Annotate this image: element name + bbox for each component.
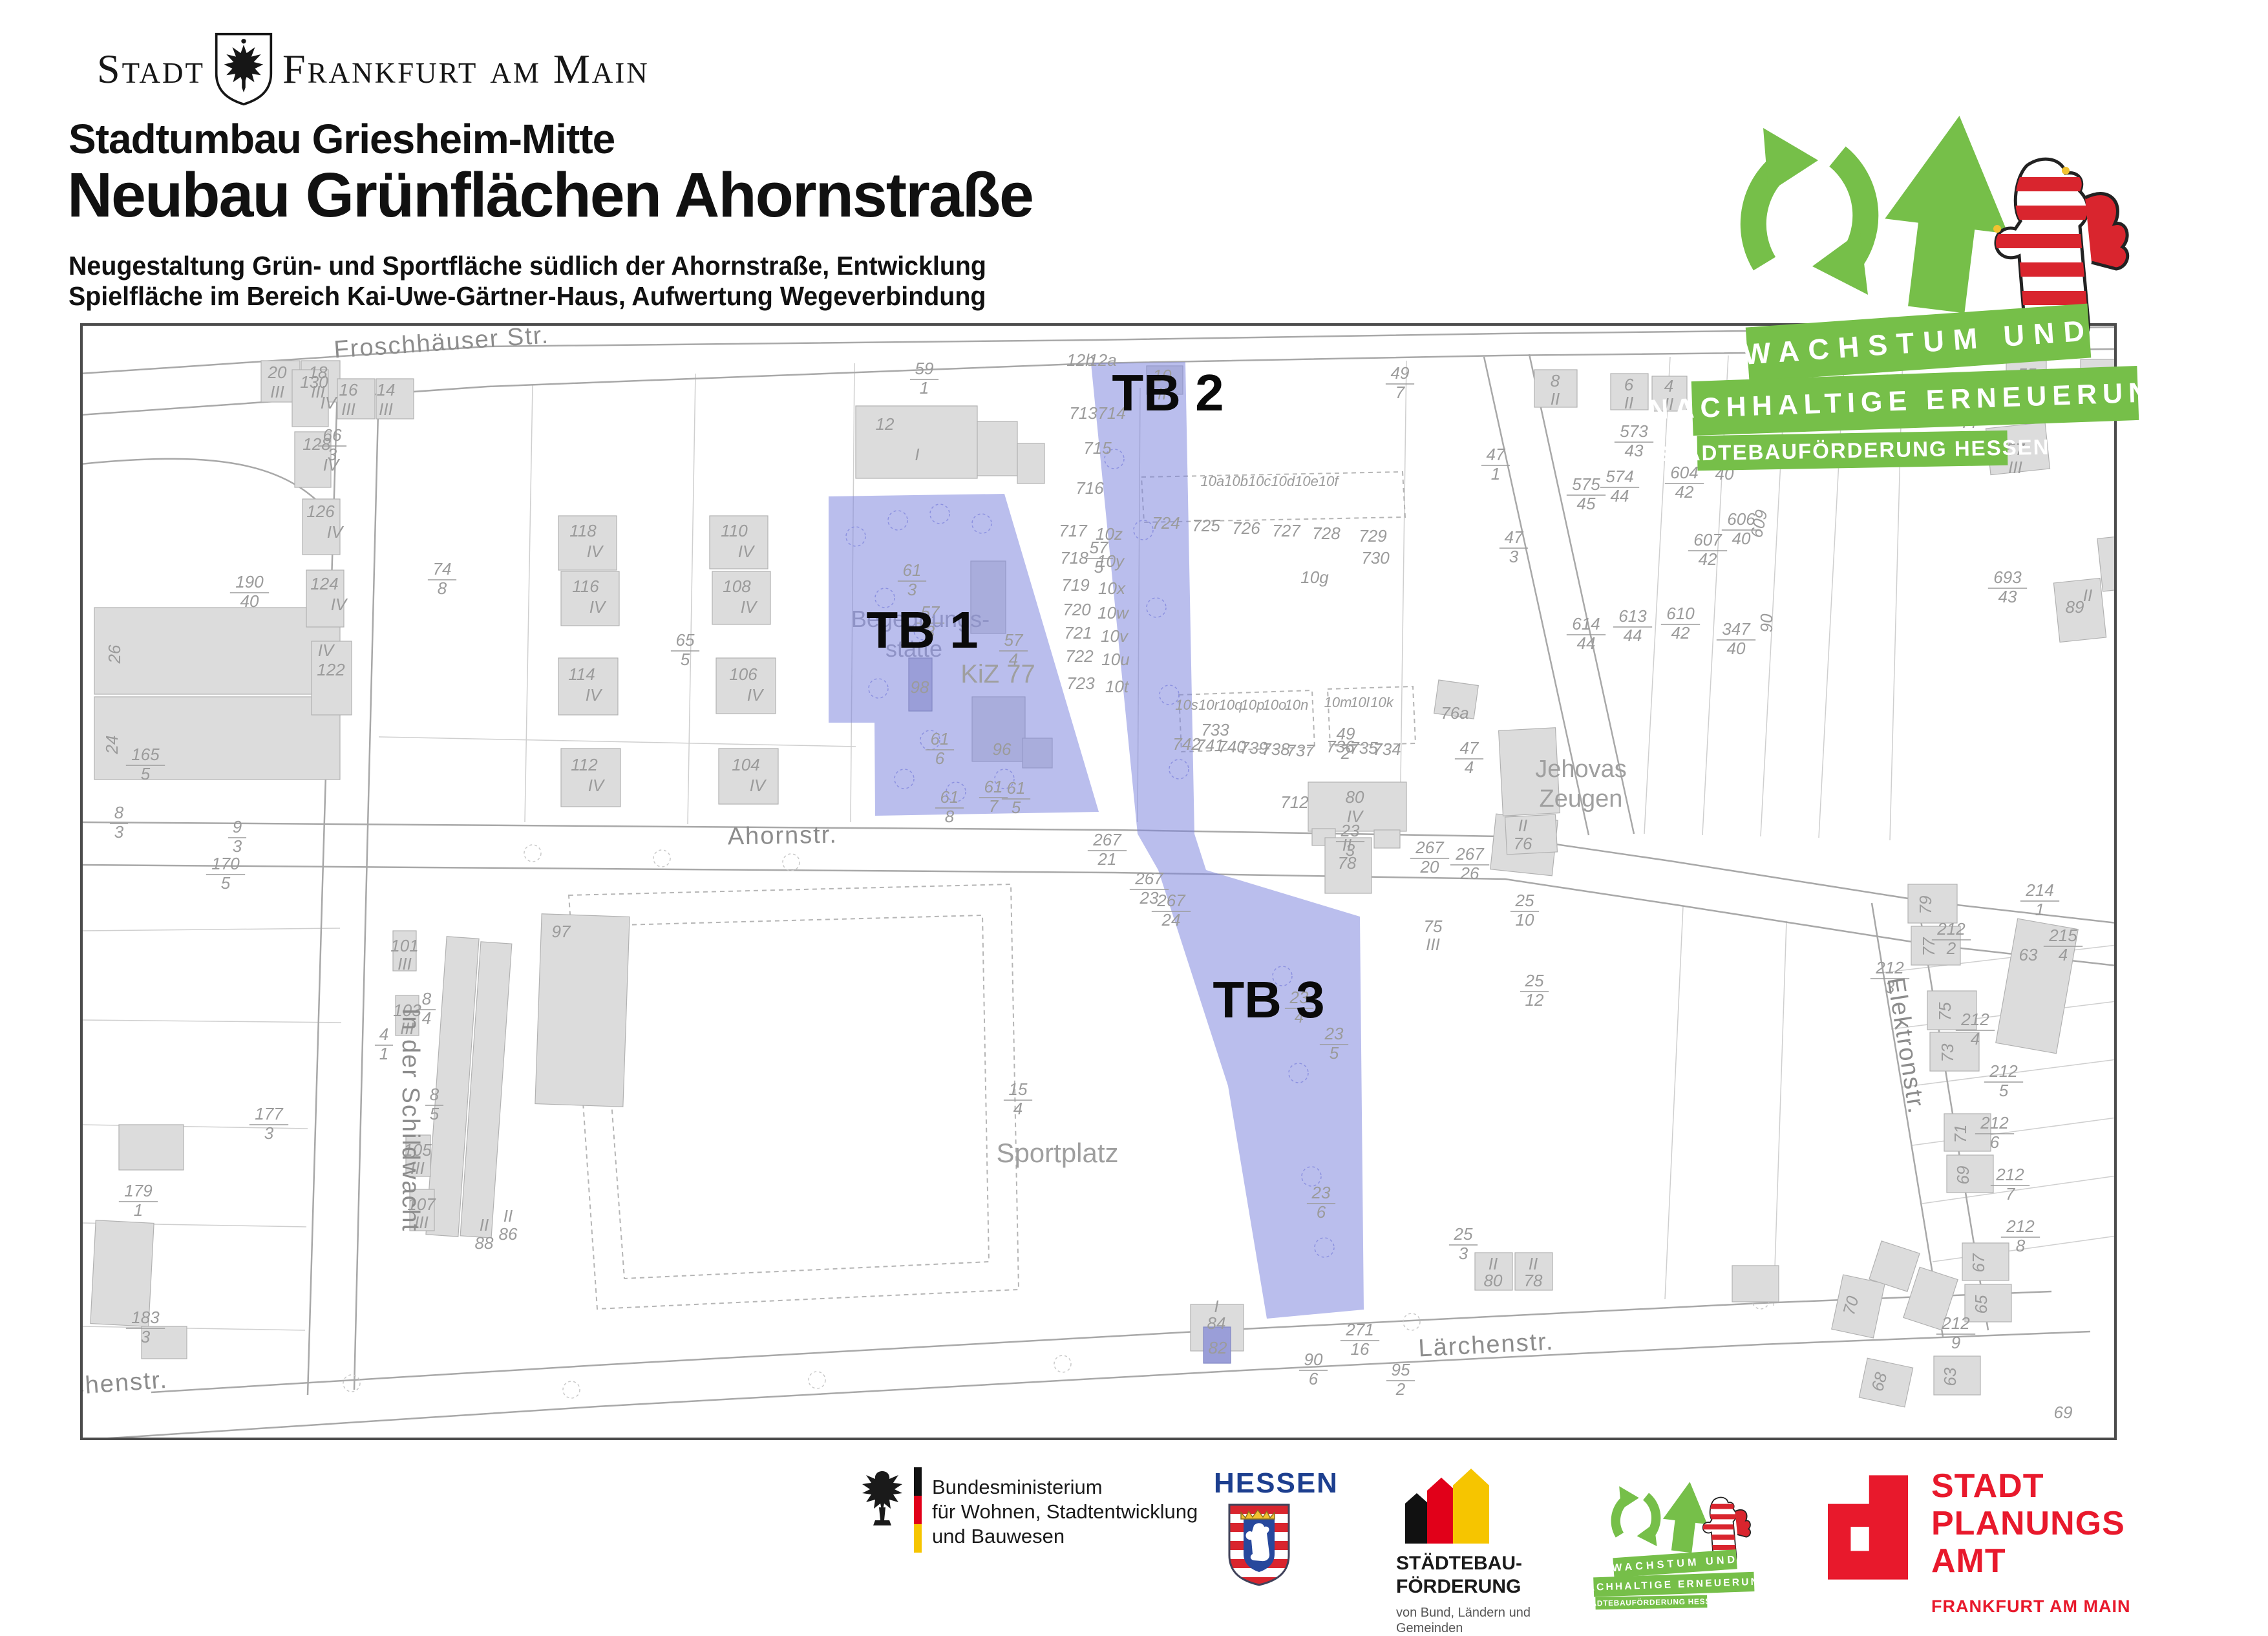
parcel-number: 6	[935, 749, 945, 768]
parcel-number: 42	[1699, 549, 1717, 569]
parcel-number: 721	[1064, 623, 1092, 643]
parcel-number: IV	[588, 776, 606, 795]
parcel-number: 10t	[1105, 677, 1130, 696]
frankfurt-eagle-crest-icon	[214, 31, 273, 107]
parcel-number: 9	[1951, 1333, 1960, 1352]
parcel-number: 4	[1013, 1099, 1023, 1118]
city-logo-word-frankfurt: Frankfurt am Main	[282, 45, 650, 93]
tree-icon	[809, 1372, 825, 1388]
parcel-number: 10m	[1324, 694, 1352, 710]
tree-icon	[524, 845, 541, 862]
building	[1374, 830, 1400, 848]
parcel-number: 610	[1666, 604, 1695, 623]
city-logo: Stadt Frankfurt am Main	[97, 31, 650, 107]
staedtebau-sub-1: von Bund, Ländern und	[1396, 1605, 1590, 1620]
parcel-number: 116	[572, 577, 599, 596]
parcel-number: 130	[300, 372, 328, 392]
parcel-number: 43	[1625, 441, 1644, 460]
page-subtitle: Neugestaltung Grün- und Sportfläche südl…	[69, 251, 986, 312]
building	[94, 608, 340, 694]
street-label: In der Schildwacht	[397, 1008, 424, 1233]
parcel-number: 10z	[1096, 524, 1123, 544]
staedtebau-line-1: STÄDTEBAU-	[1396, 1552, 1590, 1575]
parcel-number: 733	[1201, 720, 1229, 739]
parcel-number: 719	[1061, 575, 1089, 595]
parcel-number: 3	[1346, 840, 1355, 860]
parcel-number: 4	[379, 1025, 388, 1044]
parcel-number: 10w	[1097, 603, 1130, 622]
parcel-number: 49	[1391, 363, 1410, 383]
spa-line-3: AMT	[1931, 1542, 2130, 1580]
parcel-number: 5	[430, 1104, 440, 1123]
parcel-number: 4	[2059, 945, 2068, 964]
parcel-number: 575	[1572, 474, 1600, 494]
parcel-number: 267	[1415, 838, 1445, 857]
parcel-number: 5	[1999, 1081, 2009, 1100]
page-title-program: Stadtumbau Griesheim-Mitte	[69, 115, 615, 163]
parcel-number: 7	[1395, 383, 1406, 402]
parcel-number: 179	[124, 1181, 152, 1200]
parcel-number: 12	[876, 414, 895, 434]
spa-line-2: PLANUNGS	[1931, 1505, 2130, 1542]
growth-renewal-badge: WACHSTUM UND NACHHALTIGE ERNEUERUNG STÄD…	[1686, 97, 2138, 485]
parcel-number: 23	[1139, 888, 1159, 908]
parcel-number: 75	[1935, 1002, 1955, 1021]
parcel-number: 267	[1134, 869, 1164, 888]
parcel-number: 10v	[1101, 626, 1129, 646]
project-area-highlight	[1158, 870, 1364, 1319]
parcel-number: 59	[915, 359, 934, 378]
parcel-number: 101	[390, 936, 418, 955]
parcel-number: 126	[306, 502, 335, 521]
parcel-number: 215	[2048, 926, 2077, 945]
parcel-number: 114	[568, 664, 595, 684]
parcel-number: 734	[1373, 739, 1401, 759]
building	[977, 421, 1017, 476]
building	[856, 406, 977, 478]
tree-icon	[1054, 1355, 1071, 1372]
parcel-number: III	[341, 399, 355, 419]
parcel-number: 4	[1971, 1029, 1980, 1048]
parcel-number: IV	[331, 595, 348, 614]
parcel-number: 69	[2054, 1403, 2073, 1422]
parcel-number: 80	[1346, 787, 1364, 807]
project-area-highlight	[1138, 834, 1206, 870]
parcel-number: 607	[1693, 530, 1722, 549]
parcel-number: 718	[1060, 548, 1088, 568]
parcel-number: II	[2083, 586, 2092, 605]
dashed-boundary	[599, 915, 989, 1279]
recycle-arrowheads	[1763, 109, 2022, 317]
street-label: Elektronstr.	[1881, 975, 1930, 1116]
parcel-number: 717	[1059, 521, 1088, 540]
german-flag-bar-icon	[914, 1467, 922, 1553]
logo-staedtebaufoerderung: STÄDTEBAU- FÖRDERUNG von Bund, Ländern u…	[1396, 1467, 1590, 1636]
subtitle-line-2: Spielfläche im Bereich Kai-Uwe-Gärtner-H…	[69, 281, 986, 312]
parcel-number: 42	[1671, 623, 1690, 643]
parcel-number: 23	[1341, 821, 1360, 840]
parcel-number: 1	[379, 1044, 388, 1063]
staedtebau-line-2: FÖRDERUNG	[1396, 1575, 1590, 1599]
parcel-number: IV	[747, 685, 765, 705]
parcel-number: 722	[1065, 646, 1094, 666]
spa-line-1: STADT	[1931, 1467, 2130, 1505]
parcel-number: 110	[721, 521, 748, 540]
parcel-number: 4	[1465, 758, 1474, 777]
spa-line-4: FRANKFURT AM MAIN	[1931, 1597, 2130, 1617]
parcel-number: 10s	[1175, 697, 1198, 713]
parcel-number: 44	[1577, 633, 1596, 653]
parcel-number: 165	[131, 745, 160, 764]
parcel-number: IV	[321, 393, 338, 412]
parcel-number: 108	[723, 577, 751, 596]
parcel-number: 9	[233, 817, 242, 836]
parcel-number: 3	[264, 1123, 274, 1143]
parcel-number: 71	[1951, 1125, 1970, 1143]
place-label: Zeugen	[1540, 785, 1623, 813]
parcel-number: 23	[1324, 1024, 1344, 1043]
bund-line-1: Bundesministerium	[932, 1475, 1198, 1500]
road-edge	[354, 387, 379, 1390]
tree-icon	[343, 1375, 360, 1392]
parcel-number: 737	[1286, 741, 1315, 760]
federal-eagle-icon	[861, 1467, 904, 1532]
parcel-boundary	[1644, 357, 1670, 834]
parcel-number: 7	[2006, 1184, 2016, 1204]
tree-icon	[653, 850, 670, 867]
parcel-boundary	[379, 737, 856, 747]
parcel-number: 96	[993, 739, 1012, 759]
bund-line-3: und Bauwesen	[932, 1524, 1198, 1549]
parcel-number: 6	[1990, 1132, 2000, 1152]
parcel-number: 729	[1359, 526, 1386, 546]
building	[535, 914, 630, 1107]
parcel-number: 727	[1272, 521, 1301, 540]
parcel-number: 90	[1757, 613, 1776, 632]
parcel-boundary	[80, 928, 340, 931]
parcel-number: 5	[221, 873, 231, 893]
parcel-number: 57	[1004, 630, 1024, 650]
badge-banner-3: STÄDTEBAUFÖRDERUNG HESSEN	[1697, 430, 2008, 471]
parcel-number: 3	[1459, 1244, 1468, 1263]
parcel-number: 84	[1207, 1313, 1226, 1333]
parcel-number: 3	[233, 836, 242, 856]
parcel-number: IV	[327, 522, 344, 542]
parcel-number: 8	[2016, 1236, 2026, 1255]
parcel-number: 267	[1156, 891, 1186, 910]
parcel-number: 728	[1312, 524, 1341, 543]
parcel-number: 267	[1455, 844, 1485, 864]
parcel-number: III	[1426, 935, 1440, 954]
parcel-number: 25	[1525, 971, 1544, 990]
parcel-number: 44	[1611, 486, 1629, 505]
parcel-number: 47	[1505, 527, 1524, 547]
parcel-number: 214	[2025, 880, 2053, 900]
parcel-number: 212	[1989, 1061, 2018, 1081]
parcel-number: 106	[729, 664, 758, 684]
parcel-number: 26	[1460, 864, 1479, 883]
parcel-number: 15	[1009, 1079, 1028, 1099]
parcel-number: II	[1551, 389, 1560, 409]
parcel-number: 8	[438, 579, 447, 598]
street-label: Froschhäuser Str.	[333, 323, 550, 364]
road-edge	[100, 1332, 2090, 1439]
logo-stadtplanungsamt: STADT PLANUNGS AMT FRANKFURT AM MAIN	[1828, 1467, 2130, 1617]
parcel-number: IV	[323, 455, 341, 474]
parcel-number: 573	[1620, 421, 1648, 441]
parcel-number: 79	[1916, 896, 1935, 915]
parcel-number: 4	[1664, 376, 1673, 396]
parcel-boundary	[525, 385, 533, 822]
tree-icon	[563, 1381, 580, 1398]
staedtebau-sub-2: Gemeinden	[1396, 1620, 1590, 1636]
parcel-number: 726	[1232, 518, 1260, 538]
parcel-number: 8	[114, 803, 124, 822]
parcel-number: 69	[1953, 1166, 1973, 1185]
parcel-number: 124	[310, 574, 338, 593]
parcel-number: 3	[141, 1327, 151, 1346]
parcel-number: 5	[141, 764, 151, 783]
parcel-number: 712	[1280, 792, 1309, 812]
parcel-number: II	[480, 1215, 489, 1235]
parcel-number: 10g	[1300, 568, 1329, 587]
parcel-number: 614	[1572, 614, 1600, 633]
place-label: Sportplatz	[996, 1138, 1118, 1168]
parcel-number: 42	[1675, 482, 1694, 502]
parcel-number: 212	[1995, 1165, 2024, 1184]
parcel-number: 67	[1969, 1253, 1988, 1272]
parcel-number: 25	[1454, 1224, 1473, 1244]
parcel-number: 725	[1192, 516, 1220, 535]
parcel-number: 12	[1525, 990, 1544, 1010]
growth-arrow-icon	[1874, 109, 2021, 317]
bund-line-2: für Wohnen, Stadtentwicklung	[932, 1500, 1198, 1524]
parcel-number: 16	[339, 380, 358, 399]
parcel-number: 10l	[1350, 694, 1370, 710]
parcel-number: 25	[1515, 891, 1534, 910]
parcel-number: 10y	[1097, 551, 1125, 571]
city-logo-word-stadt: Stadt	[97, 45, 205, 93]
parcel-number: 212	[1875, 958, 1904, 977]
parcel-number: 128	[302, 434, 331, 454]
parcel-number: 1	[920, 378, 929, 398]
building	[119, 1125, 184, 1170]
parcel-number: 3	[907, 580, 917, 599]
parcel-number: 61	[903, 560, 922, 580]
logo-bundesministerium: Bundesministerium für Wohnen, Stadtentwi…	[861, 1467, 1198, 1553]
parcel-number: 86	[499, 1224, 518, 1244]
parcel-number: 23	[1311, 1183, 1331, 1202]
parcel-number: 47	[1487, 445, 1506, 464]
parcel-number: 74	[433, 559, 452, 579]
parcel-number: 10	[1516, 910, 1534, 930]
parcel-number: IV	[318, 641, 335, 660]
parcel-number: 267	[1092, 830, 1122, 849]
parcel-number: 713	[1069, 403, 1097, 423]
parcel-boundary	[80, 1020, 341, 1023]
street-label: chenstr.	[80, 1366, 169, 1400]
parcel-number: 1	[2035, 900, 2044, 919]
parcel-number: 720	[1063, 600, 1091, 619]
parcel-number: 170	[211, 854, 240, 873]
parcel-number: IV	[741, 597, 758, 617]
parcel-number: 5	[681, 650, 690, 669]
parcel-number: 75	[1424, 917, 1443, 936]
site-plan-map: 59112I20III18III16III14III663130IV128IV1…	[80, 323, 2117, 1440]
parcel-number: 61	[931, 729, 949, 749]
parcel-number: 716	[1076, 478, 1104, 498]
parcel-number: 10k	[1370, 694, 1394, 710]
badge-small-banner-3: STÄDTEBAUFÖRDERUNG HESSEN	[1595, 1595, 1707, 1609]
parcel-number: III	[379, 399, 393, 419]
parcel-number: 63	[2019, 945, 2038, 964]
parcel-number: 80	[1484, 1271, 1503, 1290]
parcel-boundary	[1665, 906, 1683, 1299]
parcel-number: 6	[1317, 1202, 1326, 1222]
parcel-number: 3	[114, 822, 124, 842]
parcel-number: 212	[1960, 1010, 1989, 1029]
parcel-number: 10x	[1098, 579, 1126, 598]
parcel-number: 212	[1936, 919, 1966, 939]
parcel-number: 65	[676, 630, 695, 650]
dashed-boundary	[569, 884, 1019, 1309]
houses-icon	[1396, 1467, 1493, 1544]
building	[1732, 1266, 1779, 1302]
parcel-number: 61	[940, 787, 959, 807]
parcel-number: 78	[1524, 1271, 1543, 1290]
parcel-number: 122	[317, 660, 345, 679]
parcel-number: 89	[2066, 597, 2084, 617]
parcel-boundary	[688, 374, 695, 824]
parcel-number: 271	[1345, 1320, 1373, 1339]
parcel-number: 47	[1460, 738, 1479, 758]
parcel-number: 8	[430, 1085, 440, 1104]
parcel-number: IV	[587, 542, 604, 561]
parcel-number: 2	[1946, 939, 1956, 958]
parcel-boundary	[1912, 1118, 2117, 1145]
parcel-number: 40	[240, 591, 259, 611]
parcel-number: 49	[1337, 724, 1355, 743]
hessen-crest-icon	[1228, 1503, 1290, 1586]
parcel-number: 44	[1624, 626, 1642, 645]
parcel-number: 73	[1938, 1043, 1957, 1062]
parcel-number: 177	[255, 1104, 284, 1123]
parcel-number: 190	[235, 572, 264, 591]
street-label: Lärchenstr.	[1417, 1328, 1554, 1363]
parcel-number: IV	[738, 542, 756, 561]
parcel-number: III	[270, 382, 284, 401]
parcel-number: 10r	[1198, 697, 1220, 713]
parcel-number: 6	[1624, 375, 1634, 394]
parcel-number: II	[1518, 816, 1527, 835]
road-edge	[80, 865, 2117, 966]
parcel-number: 24	[102, 736, 122, 755]
parcel-number: 97	[552, 922, 571, 941]
parcel-number: 98	[911, 677, 929, 697]
parcel-number: 10n	[1285, 697, 1309, 713]
parcel-boundary	[1774, 921, 1786, 1306]
parcel-number: 95	[1392, 1360, 1410, 1379]
parcel-number: 1	[1491, 464, 1500, 483]
project-area-label: TB 3	[1213, 971, 1324, 1028]
parcel-number: 112	[571, 755, 598, 774]
parcel-number: III	[397, 954, 412, 973]
parcel-number: 10a10b10c10d10e10f	[1201, 473, 1341, 489]
parcel-number: 61	[1007, 778, 1026, 798]
parcel-number: 574	[1606, 467, 1633, 486]
parcel-number: I	[915, 445, 919, 464]
parcel-number: IV	[586, 685, 603, 705]
logo-wachstum-small: WACHSTUM UND NACHHALTIGE ERNEUERUNG STÄD…	[1591, 1475, 1785, 1604]
parcel-number: 693	[1993, 568, 2022, 587]
project-area-label: TB 1	[866, 601, 978, 659]
parcel-number: 1	[134, 1200, 143, 1220]
project-area-label: TB 2	[1112, 364, 1224, 421]
parcel-number: 65	[1971, 1295, 1991, 1313]
parcel-number: 77	[1919, 937, 1938, 956]
lion-tail	[2085, 194, 2128, 269]
parcel-number: 212	[1980, 1113, 2009, 1132]
parcel-number: 212	[1941, 1313, 1970, 1333]
parcel-number: IV	[750, 776, 767, 795]
parcel-number: 10q	[1219, 697, 1243, 713]
parcel-number: 21	[1097, 849, 1117, 869]
parcel-number: 63	[1940, 1367, 1960, 1386]
parcel-number: 14	[377, 380, 396, 399]
parcel-number: 2	[1341, 743, 1351, 763]
parcel-number: 88	[475, 1233, 494, 1253]
parcel-number: 76	[1514, 834, 1532, 853]
parcel-number: 212	[2006, 1216, 2035, 1236]
parcel-number: 8	[945, 807, 955, 826]
street-label: Ahornstr.	[727, 822, 838, 851]
parcel-number: 118	[569, 521, 597, 540]
parcel-number: 43	[1998, 587, 2017, 606]
parcel-number: 82	[1209, 1338, 1227, 1357]
parcel-number: 5	[1330, 1043, 1339, 1063]
parcel-number: 26	[105, 644, 124, 664]
growth-renewal-badge-small: WACHSTUM UND NACHHALTIGE ERNEUERUNG STÄD…	[1591, 1475, 1754, 1615]
parcel-number: 20	[1420, 857, 1439, 876]
parcel-number: 76a	[1441, 703, 1468, 723]
tree-icon	[1403, 1313, 1420, 1330]
parcel-number: IV	[589, 597, 607, 617]
cadastral-map-canvas: 59112I20III18III16III14III663130IV128IV1…	[80, 323, 2117, 1440]
parcel-number: 723	[1066, 674, 1095, 693]
project-area-highlight	[1091, 362, 1194, 834]
parcel-number: 61	[984, 777, 1003, 796]
tree-icon	[783, 854, 800, 871]
parcel-number: 20	[268, 363, 287, 382]
place-label: Jehovas	[1535, 756, 1627, 783]
building	[94, 697, 340, 780]
parcel-number: 90	[1304, 1350, 1323, 1369]
parcel-number: 16	[1351, 1339, 1370, 1359]
parcel-number: 24	[1161, 910, 1181, 930]
parcel-number: 10u	[1101, 650, 1129, 669]
parcel-number: 715	[1083, 438, 1112, 458]
parcel-number: 724	[1152, 513, 1180, 533]
parcel-number: II	[503, 1206, 513, 1226]
place-label: KiZ 77	[960, 660, 1035, 688]
subtitle-line-1: Neugestaltung Grün- und Sportfläche südl…	[69, 251, 986, 281]
parcel-number: 10p	[1241, 697, 1265, 713]
stadtplanungsamt-glyph-icon	[1828, 1467, 1908, 1588]
parcel-number: 7	[989, 796, 999, 816]
parcel-number: 730	[1361, 548, 1390, 568]
parcel-number: 5	[1012, 798, 1021, 817]
parcel-number: 40	[1727, 639, 1746, 658]
